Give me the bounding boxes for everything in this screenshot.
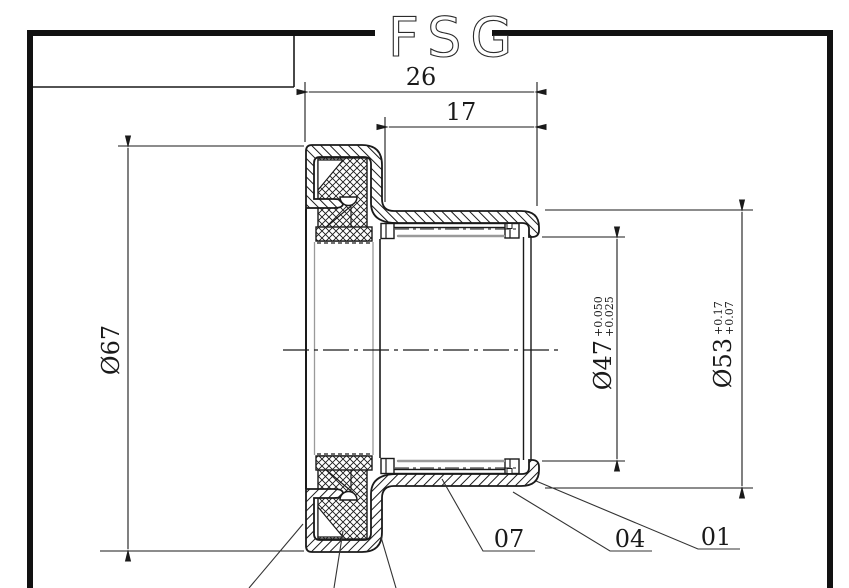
dimension-sleeve-od-label: Ø53 [709, 338, 737, 388]
dimension-sleeve-width-label: 17 [446, 98, 477, 126]
dimension-bore-tolerance-lower: +0.025 [603, 296, 616, 337]
dimension-sleeve-od-tolerance-lower: +0.07 [723, 301, 736, 335]
dimension-outer-diameter: Ø67 [97, 325, 125, 375]
bottom-leader-3 [381, 537, 396, 588]
callout-04-label: 04 [615, 525, 646, 553]
silhouette-lines [306, 209, 531, 489]
dimension-outer-diameter-label: Ø67 [97, 325, 125, 375]
dimension-bore-label: Ø47 [589, 340, 617, 390]
dimension-bore: Ø47 +0.050 +0.025 [589, 296, 617, 390]
seal-upper-half [306, 145, 539, 243]
fsg-logo: FSG [388, 6, 521, 69]
title-block [33, 36, 294, 87]
dimension-sleeve-od: Ø53 +0.17 +0.07 [709, 301, 737, 388]
callout-01-label: 01 [701, 523, 732, 551]
callout-07-label: 07 [494, 525, 525, 553]
seal-cross-section-drawing: 26 17 Ø67 Ø47 +0.050 +0.025 Ø53 +0.17 +0… [0, 0, 849, 588]
bottom-leader-1 [249, 524, 303, 588]
technical-drawing: 26 17 Ø67 Ø47 +0.050 +0.025 Ø53 +0.17 +0… [0, 0, 849, 588]
